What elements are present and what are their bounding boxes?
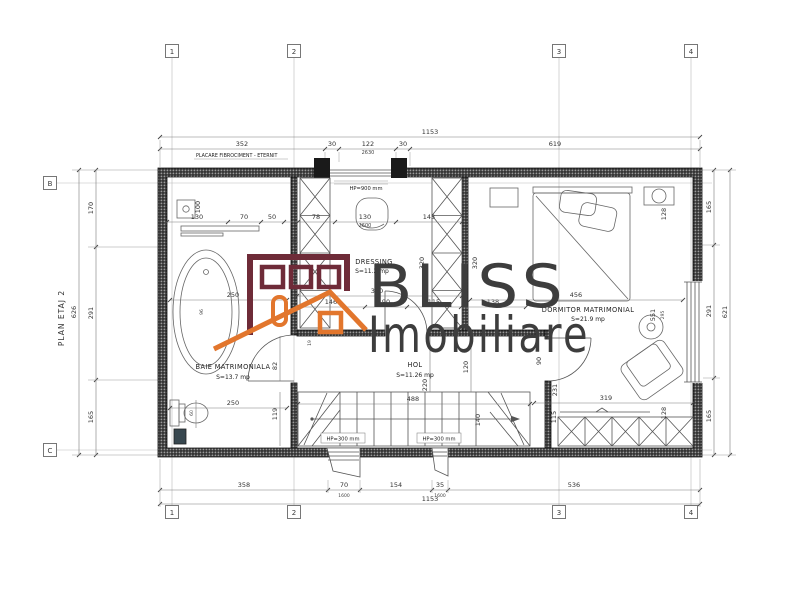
hp300-right-label: HP=300 mm — [422, 437, 455, 443]
dim-top-122: 122 — [362, 140, 374, 148]
dim-bot-536: 536 — [568, 481, 580, 489]
grid-col-2: 2 — [292, 48, 296, 56]
bath-door — [248, 335, 294, 381]
dim-top-619: 619 — [549, 140, 561, 148]
dim-119: 119 — [271, 408, 279, 420]
dim-220: 220 — [421, 379, 429, 391]
floor-plan-drawing: 1 2 3 4 1 2 3 4 B C PLAN ETAJ 2 1153 352… — [0, 0, 800, 600]
floor-plan-page: 1 2 3 4 1 2 3 4 B C PLAN ETAJ 2 1153 352… — [0, 0, 800, 600]
brand-subname: Imobiliare — [368, 306, 590, 364]
cladding-note: PLACARE FIBROCIMENT - ETERNIT — [196, 153, 278, 159]
dim-82: 82 — [271, 362, 279, 370]
dim-115v: 115 — [550, 411, 558, 423]
dim-128top: 128 — [660, 208, 668, 220]
dim-295: 295 — [660, 311, 666, 320]
dim-551: 551 — [649, 309, 657, 321]
dim-130b: 130 — [359, 213, 371, 221]
nightstand-right — [644, 187, 674, 205]
room-baie-name: BAIE MATRIMONIALA — [196, 363, 271, 371]
room-baie-area: S=13.7 mp — [216, 374, 250, 381]
dim-right-165a: 165 — [705, 201, 713, 213]
grid-col-1b: 1 — [170, 509, 174, 517]
dim-319: 319 — [600, 394, 612, 402]
dim-left-170: 170 — [87, 202, 95, 214]
dim-70: 70 — [240, 213, 248, 221]
grid-bubbles-top: 1 2 3 4 — [166, 45, 698, 58]
watermark: BLISS Imobiliare — [214, 252, 590, 364]
dim-top-30a: 30 — [328, 140, 336, 148]
dim-bot-358: 358 — [238, 481, 250, 489]
room-hol-area: S=11.26 mp — [396, 372, 434, 379]
bathroom-fixtures — [170, 200, 259, 444]
dim-bot-70: 70 — [340, 481, 348, 489]
vanity-shelf — [181, 233, 223, 236]
grid-col-1: 1 — [170, 48, 174, 56]
dim-left-total: 626 — [70, 306, 78, 318]
dim-128bot: 128 — [660, 407, 668, 419]
dim-top-30b: 30 — [399, 140, 407, 148]
dim-bot-1600a: 1600 — [338, 493, 350, 499]
dim-bot-154: 154 — [390, 481, 402, 489]
bedroom-wardrobe — [558, 408, 693, 446]
grid-col-4b: 4 — [689, 509, 694, 517]
hp900-label: HP=900 mm — [349, 186, 382, 192]
plan-title: PLAN ETAJ 2 — [57, 290, 66, 346]
dim-left-165: 165 — [87, 411, 95, 423]
vanity-counter — [181, 226, 259, 231]
grid-row-c: C — [48, 447, 53, 455]
dim-250b: 250 — [227, 399, 239, 407]
grid-bubbles-bottom: 1 2 3 4 — [166, 506, 698, 519]
dim-140: 140 — [474, 414, 482, 426]
grid-col-3: 3 — [557, 48, 561, 56]
dim-100: 100 — [194, 201, 202, 213]
dim-top-total: 1153 — [422, 128, 439, 136]
dim-456: 456 — [570, 291, 582, 299]
dim-top-352: 352 — [236, 140, 248, 148]
grid-col-3b: 3 — [557, 509, 561, 517]
dim-250a: 250 — [227, 291, 239, 299]
hp300-left-label: HP=300 mm — [326, 437, 359, 443]
grid-row-b: B — [48, 180, 53, 188]
grid-col-2b: 2 — [292, 509, 296, 517]
dim-19: 19 — [307, 340, 313, 346]
dim-96: 96 — [199, 309, 205, 315]
dim-78: 78 — [312, 213, 320, 221]
logo-door — [273, 297, 286, 325]
bedroom-window — [684, 281, 703, 383]
nightstand-left — [490, 188, 518, 207]
grid-col-4: 4 — [689, 48, 694, 56]
bath-cabinet — [174, 429, 186, 444]
dim-231: 231 — [551, 384, 559, 396]
dim-right-165b: 165 — [705, 410, 713, 422]
toilet — [170, 400, 208, 426]
dim-bot-35: 35 — [436, 481, 444, 489]
armchair — [619, 338, 686, 402]
dim-143: 143 — [423, 213, 435, 221]
headboard — [533, 187, 632, 193]
dim-top-2630: 2630 — [362, 150, 375, 156]
dim-2600: 2600 — [359, 223, 372, 229]
dim-bottom-total: 1153 — [422, 495, 439, 503]
bathtub — [173, 250, 239, 374]
dim-11: 11 — [292, 239, 298, 245]
dim-60: 60 — [189, 410, 195, 416]
dim-right-total: 621 — [721, 306, 729, 318]
dim-right-291: 291 — [705, 305, 713, 317]
dim-488: 488 — [407, 395, 419, 403]
dim-50: 50 — [268, 213, 276, 221]
dim-left-291: 291 — [87, 307, 95, 319]
grid-bubbles-left: B C — [44, 177, 57, 457]
